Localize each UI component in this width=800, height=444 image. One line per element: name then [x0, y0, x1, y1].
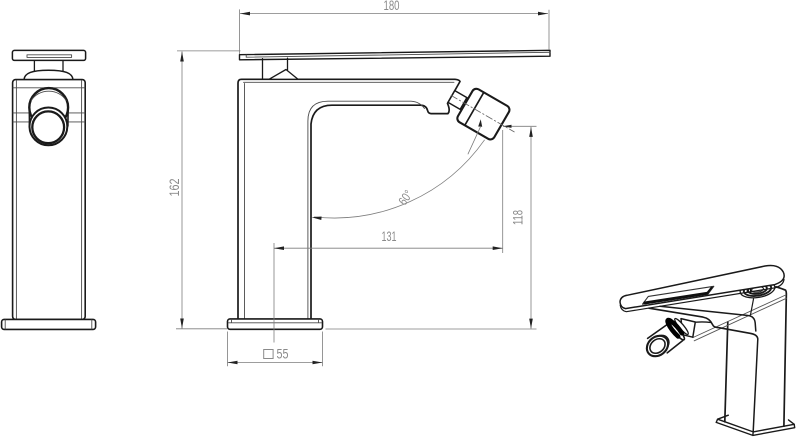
svg-text:131: 131	[382, 229, 397, 244]
svg-text:180: 180	[384, 0, 400, 13]
svg-text:162: 162	[167, 179, 182, 197]
svg-text:118: 118	[511, 210, 526, 225]
svg-text:55: 55	[277, 346, 289, 361]
